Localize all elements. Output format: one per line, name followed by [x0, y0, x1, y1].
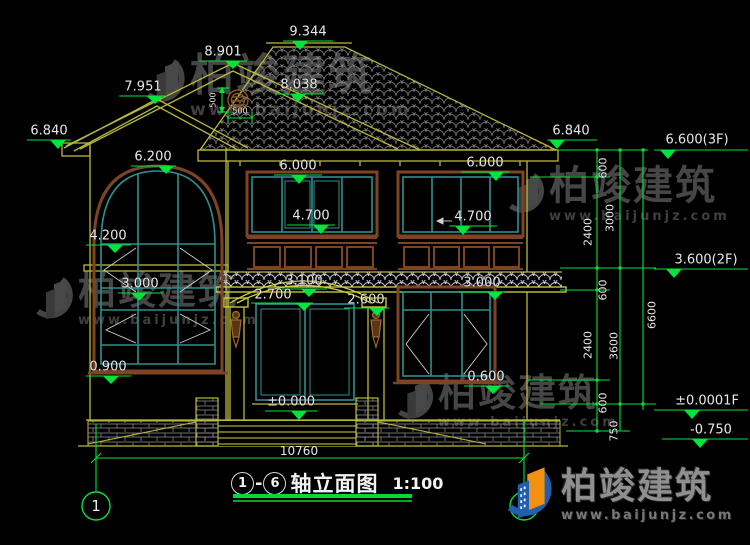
brand-name: 柏竣建筑 — [561, 469, 734, 505]
wall-lamps — [231, 312, 381, 348]
casement-marks — [104, 218, 487, 374]
title-underline-thin — [233, 500, 412, 502]
main-hip-roof — [200, 47, 556, 150]
brand-url: www.baijunjz.com — [561, 508, 734, 523]
plinth — [88, 398, 560, 446]
pilaster-capital — [362, 298, 386, 307]
title-underline — [233, 494, 412, 498]
canopy-tile-band — [220, 272, 562, 287]
axis-bubble-left: 1 — [83, 493, 109, 519]
first-floor-right-window-frame — [398, 287, 495, 381]
title-axis-end-bubble: 6 — [263, 472, 286, 495]
title-dash: - — [255, 473, 262, 494]
title-axis-start-bubble: 1 — [231, 472, 254, 495]
entrance-pier — [356, 398, 378, 446]
wall-lamp-icon — [233, 312, 240, 319]
title-scale: 1:100 — [392, 474, 443, 493]
brand-logo-icon — [503, 462, 555, 530]
arched-window-frame — [94, 166, 222, 371]
eave-fascia — [198, 150, 558, 161]
brand-logo: 柏竣建筑 www.baijunjz.com — [503, 462, 734, 530]
balcony-railings — [247, 238, 523, 269]
elevation-drawing-canvas: 柏竣建筑 www.baijunjz.com 柏竣建筑 www.baijunjz.… — [0, 0, 750, 545]
entrance-pier — [196, 398, 218, 446]
canopy-fascia — [216, 287, 566, 292]
